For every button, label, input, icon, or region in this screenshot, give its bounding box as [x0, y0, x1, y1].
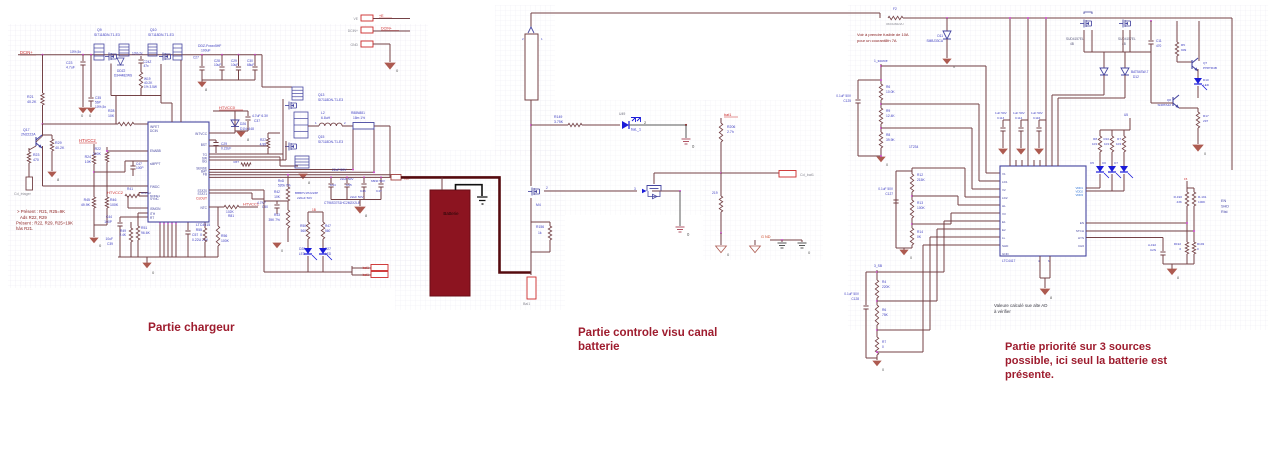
svg-text:0: 0 — [910, 256, 912, 260]
svg-text:SHD: SHD — [1221, 205, 1229, 209]
svg-text:STAT1: STAT1 — [198, 192, 208, 196]
svg-text:43K: 43K — [1176, 200, 1182, 204]
svg-text:220K: 220K — [882, 285, 891, 289]
svg-text:Valeure calculé sue alte AD: Valeure calculé sue alte AD — [994, 303, 1047, 308]
svg-text:R12: R12 — [917, 173, 923, 177]
svg-text:C125: C125 — [843, 99, 851, 103]
svg-text:D344482WS: D344482WS — [114, 74, 132, 78]
svg-text:bat1: bat1 — [363, 273, 370, 277]
svg-text:C29: C29 — [221, 142, 227, 146]
svg-text:SI7118DN-T1-E3: SI7118DN-T1-E3 — [318, 140, 343, 144]
svg-text:CH6: CH6 — [1078, 244, 1084, 248]
svg-text:Q15: Q15 — [318, 135, 325, 139]
svg-text:BAT54SW-7: BAT54SW-7 — [1131, 70, 1149, 74]
svg-text:6.8uH: 6.8uH — [321, 116, 331, 120]
svg-text:CsOUT: CsOUT — [196, 197, 207, 201]
svg-text:U5: U5 — [1124, 113, 1128, 117]
svg-text:18m 1%: 18m 1% — [353, 116, 365, 120]
svg-text:12.4K: 12.4K — [886, 114, 895, 118]
svg-text:4.7uF 6.3V: 4.7uF 6.3V — [252, 114, 269, 118]
svg-text:présente.: présente. — [1005, 369, 1054, 381]
svg-text:D11: D11 — [937, 34, 943, 38]
svg-text:R9: R9 — [886, 109, 890, 113]
svg-text:R27: R27 — [260, 138, 266, 142]
svg-text:C45: C45 — [346, 183, 352, 187]
svg-text:68NF 50V: 68NF 50V — [371, 179, 386, 183]
svg-text:39K 7%: 39K 7% — [268, 218, 280, 222]
svg-text:EN: EN — [1080, 221, 1084, 225]
svg-text:R206: R206 — [727, 125, 735, 129]
svg-text:8: 8 — [365, 214, 367, 218]
svg-text:Partie chargeur: Partie chargeur — [148, 320, 235, 334]
svg-text:LTC4417: LTC4417 — [1002, 259, 1015, 263]
svg-text:SUD4157EL: SUD4157EL — [1118, 37, 1136, 41]
svg-text:1k: 1k — [538, 231, 542, 235]
svg-text:R6?: R6? — [233, 160, 239, 164]
svg-text:R-191: R-191 — [1198, 195, 1207, 199]
svg-text:219: 219 — [712, 191, 718, 195]
svg-text:103: 103 — [1104, 142, 1109, 146]
svg-text:8: 8 — [247, 138, 249, 142]
svg-text:520k 7%: 520k 7% — [278, 184, 291, 188]
svg-text:0: 0 — [1204, 152, 1206, 156]
svg-text:bat1: bat1 — [724, 113, 731, 117]
svg-text:FWDC: FWDC — [150, 185, 160, 189]
svg-text:R43: R43 — [274, 213, 280, 217]
svg-text:C27: C27 — [193, 56, 199, 60]
svg-text:10K: 10K — [108, 114, 115, 118]
svg-text:220uF 50V: 220uF 50V — [297, 196, 313, 200]
svg-text:R47: R47 — [325, 224, 331, 228]
svg-text:470: 470 — [33, 158, 39, 162]
svg-text:R24: R24 — [85, 155, 91, 159]
svg-text:R4: R4 — [882, 280, 886, 284]
svg-text:75K: 75K — [882, 313, 889, 317]
svg-text:1uF 50V: 1uF 50V — [1031, 111, 1044, 115]
svg-text:SI7118DN-T1-E3: SI7118DN-T1-E3 — [94, 33, 120, 37]
svg-text:56P: 56P — [95, 101, 102, 105]
svg-text:baL_1: baL_1 — [631, 128, 641, 132]
svg-text:R149: R149 — [554, 115, 562, 119]
svg-text:V3: V3 — [1002, 212, 1006, 216]
svg-text:R6: R6 — [882, 308, 886, 312]
svg-text:V2: V2 — [1002, 188, 1006, 192]
svg-text:SUD4157EL: SUD4157EL — [1066, 37, 1084, 41]
svg-text:68uF: 68uF — [247, 63, 254, 67]
svg-text:R8: R8 — [1093, 137, 1097, 141]
svg-text:1T234: 1T234 — [909, 145, 919, 149]
svg-text:R28: R28 — [108, 109, 114, 113]
svg-text:R41: R41 — [127, 187, 133, 191]
svg-text:215K: 215K — [917, 178, 926, 182]
svg-text:C116: C116 — [1033, 116, 1040, 120]
svg-text:100K: 100K — [110, 203, 119, 207]
svg-text:R88N881: R88N881 — [351, 111, 365, 115]
svg-text:4.7uF: 4.7uF — [66, 66, 75, 70]
svg-text:47x: 47x — [144, 64, 150, 68]
svg-text:Q8: Q8 — [1167, 98, 1171, 102]
svg-text:10uF: 10uF — [105, 237, 113, 241]
svg-text:U49: U49 — [619, 112, 625, 116]
svg-text:R81: R81 — [228, 214, 234, 218]
svg-text:Partie priorité sur 3 sources: Partie priorité sur 3 sources — [1005, 341, 1151, 353]
svg-text:R22: R22 — [95, 147, 101, 151]
svg-text:100P: 100P — [136, 166, 143, 170]
svg-text:hàs R21.: hàs R21. — [16, 226, 33, 231]
svg-text:MODE1: MODE1 — [150, 194, 160, 198]
svg-text:Bal1: Bal1 — [523, 302, 530, 306]
svg-text:0: 0 — [200, 233, 202, 237]
svg-text:SI48TA42: SI48TA42 — [1157, 103, 1171, 107]
svg-text:C50: C50 — [262, 205, 268, 209]
svg-text:DCIN+: DCIN+ — [381, 27, 392, 31]
svg-text:R50: R50 — [300, 224, 306, 228]
svg-text:bat1: bat1 — [363, 266, 370, 270]
svg-text:L2: L2 — [321, 111, 325, 115]
svg-text:GND: GND — [350, 43, 358, 47]
svg-text:VDD3: VDD3 — [1076, 193, 1084, 197]
svg-text:DCIN: DCIN — [150, 129, 158, 133]
svg-text:103: 103 — [1092, 142, 1097, 146]
svg-text:HTVCC2: HTVCC2 — [79, 138, 96, 143]
svg-text:R7: R7 — [882, 340, 886, 344]
svg-text:560: 560 — [325, 229, 331, 233]
svg-text:R42: R42 — [274, 190, 280, 194]
svg-text:R193: R193 — [1197, 242, 1205, 246]
svg-text:8: 8 — [1177, 276, 1179, 280]
svg-text:R5: R5 — [1181, 43, 1185, 47]
svg-text:100K: 100K — [221, 239, 230, 243]
svg-text:3_SB: 3_SB — [874, 264, 883, 268]
svg-text:470: 470 — [1156, 44, 1162, 48]
svg-text:DDZ-Fxxxx5HF: DDZ-Fxxxx5HF — [198, 44, 221, 48]
svg-text:SI7118DN-T1-E3: SI7118DN-T1-E3 — [148, 33, 174, 37]
svg-text:SI7118DN-T1-E3: SI7118DN-T1-E3 — [318, 98, 343, 102]
svg-text:0: 0 — [882, 345, 884, 349]
svg-text:100K: 100K — [1198, 200, 1206, 204]
svg-text:R10: R10 — [1103, 137, 1109, 141]
svg-text:0: 0 — [886, 163, 888, 167]
svg-text:R55: R55 — [196, 228, 202, 232]
svg-text:HYS: HYS — [1078, 236, 1084, 240]
svg-text:R29: R29 — [55, 141, 62, 145]
svg-text:10K: 10K — [274, 195, 281, 199]
svg-text:100P: 100P — [104, 220, 113, 224]
svg-text:100K: 100K — [93, 152, 102, 156]
svg-text:100uF: 100uF — [201, 49, 211, 53]
svg-text:ENABB: ENABB — [150, 149, 161, 153]
svg-text:1% 3.5W: 1% 3.5W — [144, 85, 157, 89]
svg-text:BST: BST — [201, 143, 207, 147]
svg-text:560: 560 — [301, 229, 307, 233]
svg-text:DCIN+: DCIN+ — [20, 50, 33, 55]
svg-text:C57: C57 — [192, 233, 198, 237]
svg-text:GND: GND — [1002, 252, 1010, 256]
svg-text:0: 0 — [281, 249, 283, 253]
svg-text:0: 0 — [882, 368, 884, 372]
svg-text:Rist: Rist — [1221, 210, 1228, 214]
svg-text:C11: C11 — [1156, 39, 1162, 43]
svg-text:R7: R7 — [1117, 137, 1121, 141]
svg-text:10K: 10K — [85, 160, 92, 164]
svg-text:pour un courant8fn 7A: pour un courant8fn 7A — [857, 38, 897, 43]
svg-text:Partie controle visu canal: Partie controle visu canal — [578, 327, 717, 339]
svg-text:Q17: Q17 — [23, 128, 30, 132]
svg-text:Voir à prendre fusible de 10A: Voir à prendre fusible de 10A — [857, 32, 909, 37]
svg-text:A-192: A-192 — [1148, 243, 1156, 247]
svg-text:Présent : R22, R29, R25=19K: Présent : R22, R29, R25=19K — [16, 221, 73, 226]
svg-text:D6: D6 — [1102, 161, 1106, 165]
svg-text:R21: R21 — [27, 95, 34, 99]
svg-text:HTVCC1: HTVCC1 — [243, 202, 260, 207]
svg-text:C44: C44 — [106, 215, 112, 219]
svg-text:HTVCC2: HTVCC2 — [107, 190, 124, 195]
svg-text:RT: RT — [150, 216, 154, 220]
svg-text:1B: 1B — [312, 208, 316, 212]
svg-text:1_source: 1_source — [874, 59, 888, 63]
svg-text:LD1: LD1 — [1002, 180, 1008, 184]
svg-text:R156: R156 — [536, 225, 544, 229]
svg-text:G ND: G ND — [761, 235, 771, 239]
svg-text:R13: R13 — [917, 201, 923, 205]
svg-text:2.4K: 2.4K — [119, 233, 126, 237]
svg-text:0.1uF 50V: 0.1uF 50V — [836, 94, 852, 98]
svg-text:Q13: Q13 — [318, 93, 325, 97]
svg-text:22uF 50V: 22uF 50V — [332, 168, 347, 172]
svg-text:10%,5x: 10%,5x — [70, 50, 81, 54]
svg-text:C39: C39 — [107, 242, 113, 246]
svg-text:100K: 100K — [917, 206, 926, 210]
svg-text:R14: R14 — [917, 230, 923, 234]
svg-text:R6: R6 — [886, 85, 890, 89]
svg-text:Q7: Q7 — [1203, 61, 1207, 65]
svg-text:49.9K: 49.9K — [81, 203, 91, 207]
svg-text:BG: BG — [202, 160, 207, 164]
svg-text:10uF: 10uF — [231, 63, 238, 67]
svg-text:10%,5x: 10%,5x — [95, 105, 106, 109]
svg-text:40.2K: 40.2K — [27, 100, 37, 104]
svg-text:909: 909 — [1181, 48, 1186, 52]
svg-text:3.75K: 3.75K — [554, 120, 564, 124]
svg-text:CT96S37S1HC2M2X2LB: CT96S37S1HC2M2X2LB — [324, 201, 360, 205]
svg-text:D10: D10 — [1203, 78, 1209, 82]
svg-text:BBBPV1H2223P: BBBPV1H2223P — [295, 191, 318, 195]
svg-text:D1N4448: D1N4448 — [240, 127, 254, 131]
svg-text:ISMON: ISMON — [150, 207, 161, 211]
svg-text:22uF 50V: 22uF 50V — [340, 177, 354, 181]
svg-text:C128: C128 — [851, 297, 859, 301]
svg-text:VE: VE — [353, 17, 358, 21]
svg-text:10uF: 10uF — [214, 63, 221, 67]
svg-text:Ads R22, R29: Ads R22, R29 — [20, 215, 47, 220]
svg-text:Cd_bat1: Cd_bat1 — [800, 173, 814, 177]
svg-text:EN: EN — [1221, 199, 1227, 203]
svg-text:LED: LED — [1203, 83, 1210, 87]
svg-text:RxD: RxD — [278, 179, 285, 183]
svg-text:15: 15 — [1184, 177, 1188, 181]
svg-text:R45: R45 — [84, 198, 90, 202]
svg-text:+E: +E — [379, 14, 384, 18]
svg-text:> Présent : R21, R25=9K: > Présent : R21, R25=9K — [17, 209, 65, 214]
svg-text:22uF 50V: 22uF 50V — [350, 195, 364, 199]
svg-text:D12: D12 — [1133, 75, 1139, 79]
svg-text:à vérifier: à vérifier — [994, 309, 1011, 314]
svg-text:10.0K: 10.0K — [886, 90, 895, 94]
svg-text:F2: F2 — [893, 7, 897, 11]
svg-text:E1: E1 — [1002, 220, 1006, 224]
svg-text:PH8TR4B: PH8TR4B — [1203, 66, 1217, 70]
svg-text:LL: LL — [1002, 236, 1006, 240]
svg-text:C37: C37 — [254, 119, 260, 123]
svg-text:1uF 50V: 1uF 50V — [1013, 111, 1026, 115]
svg-text:C23: C23 — [66, 61, 72, 65]
svg-text:R8: R8 — [886, 133, 890, 137]
svg-text:C114: C114 — [1015, 116, 1022, 120]
svg-text:HTVCC0: HTVCC0 — [219, 105, 236, 110]
svg-text:2: 2 — [546, 186, 548, 190]
svg-text:sMPPT: sMPPT — [150, 162, 161, 166]
svg-text:R17: R17 — [1203, 114, 1209, 118]
svg-text:96.6K: 96.6K — [141, 231, 151, 235]
svg-text:R51: R51 — [141, 226, 147, 230]
svg-text:C35: C35 — [95, 96, 101, 100]
svg-text:C2N: C2N — [1150, 248, 1156, 252]
svg-text:0603H8222U: 0603H8222U — [886, 22, 904, 26]
svg-text:D26: D26 — [240, 122, 246, 126]
svg-text:C113: C113 — [997, 116, 1004, 120]
svg-text:297: 297 — [1203, 119, 1208, 123]
svg-text:C47: C47 — [376, 189, 382, 193]
svg-text:Cd_étager: Cd_étager — [14, 192, 32, 196]
svg-text:M4: M4 — [536, 203, 541, 207]
svg-text:10%,2x: 10%,2x — [132, 52, 143, 56]
svg-text:40.2K: 40.2K — [55, 146, 65, 150]
svg-text:R-190: R-190 — [1174, 195, 1183, 199]
svg-text:E2: E2 — [1002, 228, 1006, 232]
svg-text:103: 103 — [1116, 142, 1121, 146]
svg-text:D7: D7 — [1114, 161, 1118, 165]
svg-text:SMBJ33CA: SMBJ33CA — [927, 39, 944, 43]
svg-text:C44: C44 — [330, 183, 336, 187]
svg-text:FB: FB — [203, 173, 207, 177]
svg-text:Batterie: Batterie — [443, 211, 459, 216]
svg-text:V1: V1 — [1002, 172, 1006, 176]
svg-text:4.99: 4.99 — [260, 143, 267, 147]
svg-text:39.9K: 39.9K — [886, 138, 895, 142]
svg-text:C46: C46 — [360, 189, 366, 193]
svg-text:HL: HL — [1002, 204, 1006, 208]
svg-text:batterie: batterie — [578, 341, 620, 353]
svg-text:1uF 50V: 1uF 50V — [995, 111, 1008, 115]
svg-text:0.1uF 50V: 0.1uF 50V — [878, 187, 894, 191]
svg-text:3: 3 — [634, 187, 636, 191]
svg-text:8: 8 — [1050, 296, 1052, 300]
svg-text:Q9: Q9 — [97, 28, 102, 32]
svg-text:possible, ici seul la batterie: possible, ici seul la batterie est — [1005, 355, 1167, 367]
svg-text:D5: D5 — [1090, 161, 1094, 165]
svg-text:INTVCC: INTVCC — [195, 132, 208, 136]
svg-text:8: 8 — [205, 88, 207, 92]
svg-text:8: 8 — [308, 181, 310, 185]
svg-text:2N2222A: 2N2222A — [21, 133, 36, 137]
svg-text:2.7h: 2.7h — [727, 130, 734, 134]
svg-text:NTC: NTC — [200, 206, 207, 210]
svg-text:DCIN+: DCIN+ — [348, 29, 358, 33]
svg-text:C127: C127 — [885, 192, 893, 196]
svg-text:4B: 4B — [1070, 42, 1074, 46]
svg-text:SHD: SHD — [1002, 244, 1009, 248]
svg-text:LD2: LD2 — [1002, 196, 1008, 200]
svg-text:0.1uF 50V: 0.1uF 50V — [844, 292, 860, 296]
svg-text:R56: R56 — [221, 234, 227, 238]
svg-text:STCH: STCH — [1076, 229, 1084, 233]
svg-text:R192: R192 — [1174, 242, 1182, 246]
svg-text:Q10: Q10 — [150, 28, 157, 32]
svg-text:DDZ2: DDZ2 — [117, 69, 126, 73]
svg-text:D28: D28 — [299, 247, 305, 251]
svg-text:R46: R46 — [110, 198, 116, 202]
svg-text:0.22uF: 0.22uF — [221, 147, 231, 151]
svg-text:LTC4015: LTC4015 — [196, 223, 210, 227]
svg-text:R23: R23 — [33, 153, 39, 157]
